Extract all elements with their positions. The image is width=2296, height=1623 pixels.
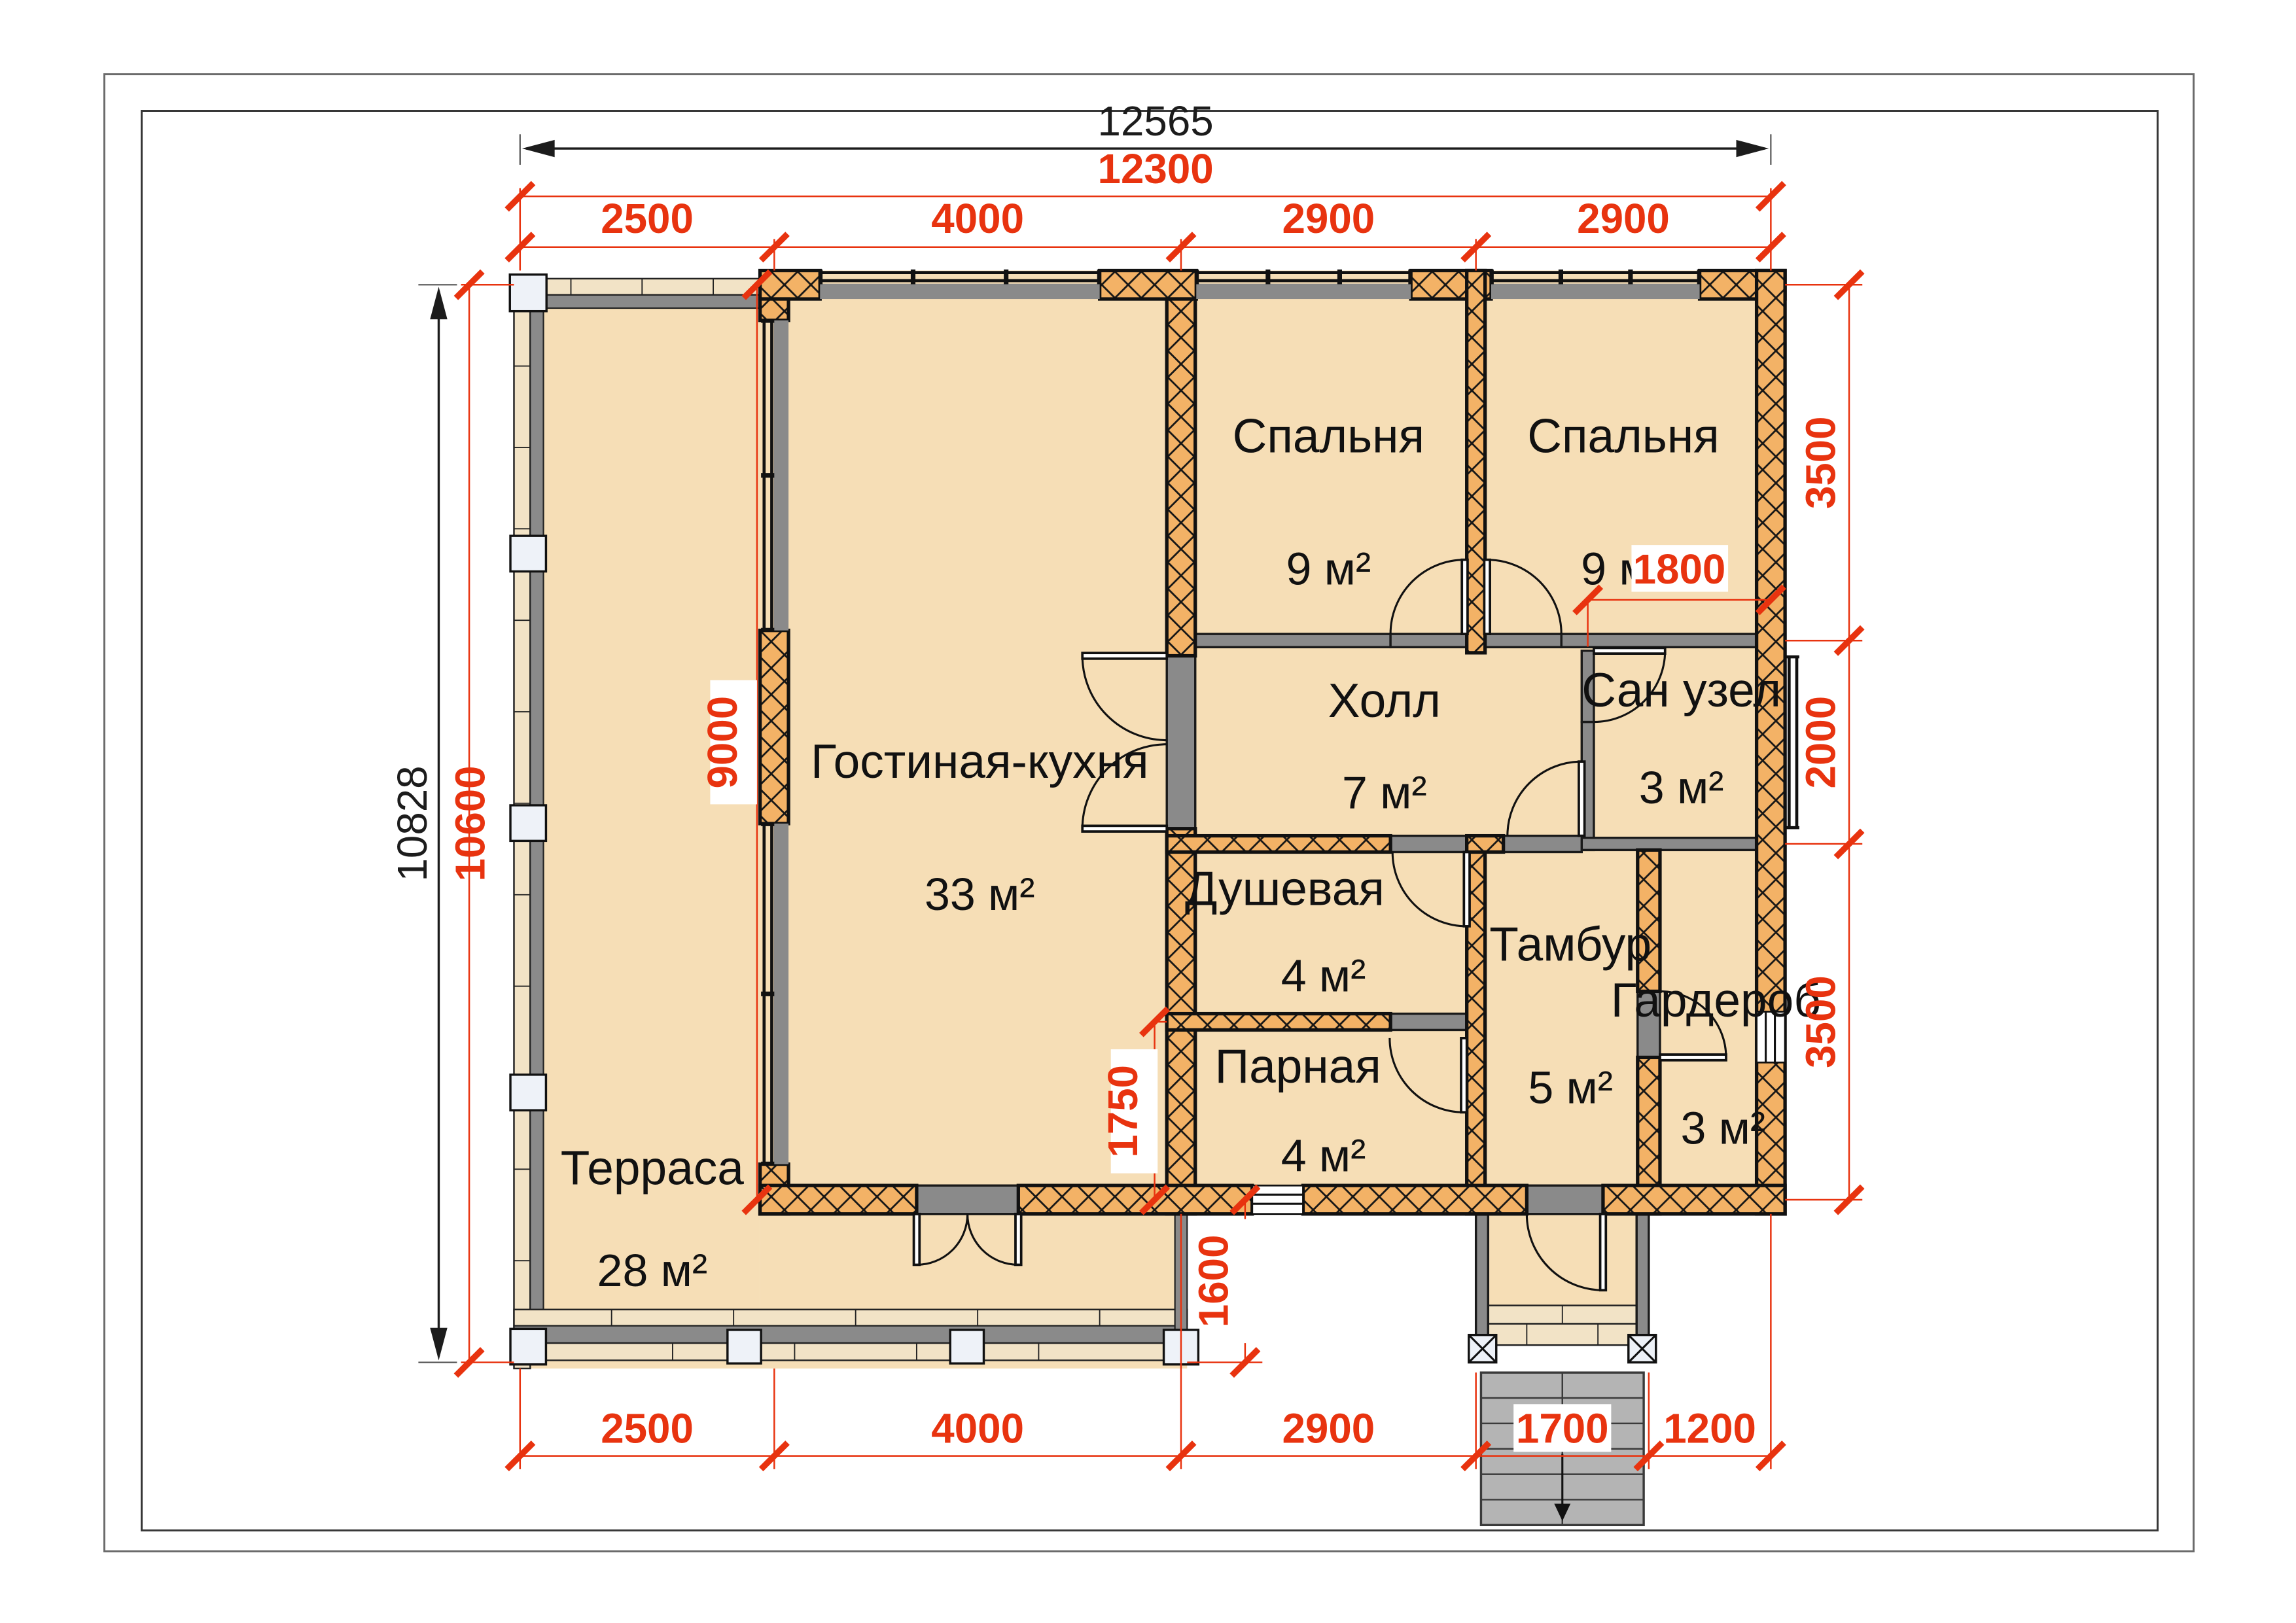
wall-segment (1467, 836, 1504, 852)
dim-right-2000: 2000 (1797, 696, 1844, 789)
door-threshold (1390, 634, 1467, 647)
dim-inner-1600: 1600 (1190, 1234, 1237, 1327)
room-label-tambur-area: 5 м² (1528, 1062, 1613, 1113)
wall-segment (760, 1185, 917, 1214)
door-threshold (917, 1185, 1018, 1214)
window-living-left-lower (761, 824, 788, 1164)
wall-segment (760, 631, 789, 824)
dim-bottom-1700: 1700 (1516, 1405, 1609, 1452)
partition (1581, 838, 1756, 850)
door-threshold (1167, 656, 1195, 829)
room-label-bedroom2-name: Спальня (1527, 410, 1719, 463)
floor-plan-drawing: Спальня 9 м² Спальня 9 м² Гостиная-кухня… (357, 92, 1893, 1576)
terrace-floor (514, 279, 760, 1369)
dim-left-10828: 10828 (389, 765, 436, 881)
window-bedroom2-top (1491, 270, 1700, 299)
room-label-living-area: 33 м² (925, 869, 1035, 920)
dim-left-overall: 10828 (389, 287, 448, 1360)
terrace-top-rail (530, 295, 760, 308)
room-label-tambur-name: Тамбур (1489, 918, 1651, 971)
room-label-terrace-area: 28 м² (597, 1245, 708, 1296)
dim-bottom-1200: 1200 (1663, 1405, 1756, 1452)
dim-bottom-2900: 2900 (1282, 1405, 1375, 1452)
wall-segment (1167, 1014, 1390, 1030)
terrace-post (510, 536, 546, 571)
wall-segment (1167, 299, 1195, 655)
room-label-garderob-name: Гардероб (1611, 974, 1821, 1027)
wall-segment (1757, 271, 1786, 1214)
dim-top-2900b: 2900 (1577, 195, 1670, 242)
dim-bottom-2500: 2500 (601, 1405, 694, 1452)
porch-wall-right (1636, 1214, 1649, 1345)
dim-top-2500: 2500 (601, 195, 694, 242)
room-label-shower-name: Душевая (1185, 862, 1385, 915)
terrace-post (510, 275, 546, 311)
room-label-bedroom1-name: Спальня (1233, 410, 1424, 463)
porch-post-left (1469, 1335, 1496, 1363)
dim-bottom-4000: 4000 (931, 1405, 1024, 1452)
dim-left-axis: 10600 (446, 271, 493, 1376)
window-living-left-upper (761, 321, 788, 631)
dim-right-segments: 3500 2000 3500 (1797, 271, 1862, 1213)
porch-post-right (1629, 1335, 1656, 1363)
room-label-sanuzel-name: Сан узел (1581, 664, 1781, 717)
door-threshold (1390, 1014, 1467, 1030)
porch-wall-left (1476, 1214, 1489, 1345)
terrace-post (728, 1330, 761, 1363)
dim-right-3500b: 3500 (1797, 975, 1844, 1068)
dim-right-3500a: 3500 (1797, 416, 1844, 509)
dim-left-10600: 10600 (446, 765, 493, 881)
wall-segment (1467, 271, 1485, 653)
terrace-post (950, 1330, 983, 1363)
dim-top-segments: 2500 4000 2900 2900 (507, 195, 1784, 260)
partition (1195, 634, 1390, 647)
deck-rail (514, 1326, 1187, 1343)
partition (1561, 634, 1756, 647)
wall-segment (1100, 271, 1197, 300)
room-label-bedroom1-area: 9 м² (1286, 544, 1371, 595)
dim-top-4000: 4000 (931, 195, 1024, 242)
wall-segment (760, 299, 789, 321)
wall-segment (1603, 1185, 1785, 1214)
porch-deck-row (1488, 1324, 1636, 1346)
room-label-parnaya-name: Парная (1215, 1040, 1381, 1093)
wall-segment (1018, 1185, 1252, 1214)
door-threshold (1390, 836, 1467, 852)
deck-plank-row1 (514, 1310, 1187, 1326)
dim-top-overall: 12565 (522, 97, 1769, 157)
room-label-garderob-area: 3 м² (1680, 1103, 1765, 1154)
room-label-shower-area: 4 м² (1281, 950, 1366, 1001)
room-label-hall-name: Холл (1328, 674, 1441, 727)
room-label-sanuzel-area: 3 м² (1639, 762, 1724, 813)
room-label-hall-area: 7 м² (1342, 767, 1427, 818)
dim-top-12565: 12565 (1098, 97, 1214, 145)
dim-top-2900a: 2900 (1282, 195, 1375, 242)
dim-top-12300: 12300 (1098, 145, 1214, 192)
wall-segment (1167, 836, 1390, 852)
terrace-post (510, 1075, 546, 1110)
dim-inner-9000: 9000 (699, 696, 746, 789)
terrace-top-plank (514, 279, 760, 295)
wall-segment (1303, 1185, 1527, 1214)
door-threshold (1504, 836, 1582, 852)
terrace-post (510, 805, 546, 841)
window-bedroom1-top (1196, 270, 1411, 299)
window-parnaya-bottom (1252, 1185, 1303, 1214)
terrace-post (510, 1329, 546, 1364)
deck-plank-row2 (514, 1343, 1187, 1360)
door-threshold (1485, 634, 1562, 647)
dim-inner-1800: 1800 (1633, 546, 1726, 593)
dim-inner-1750: 1750 (1099, 1065, 1146, 1158)
window-living-top (820, 270, 1099, 299)
room-label-living-name: Гостиная-кухня (811, 735, 1149, 788)
room-label-parnaya-area: 4 м² (1281, 1130, 1366, 1181)
room-label-terrace-name: Терраса (561, 1142, 744, 1195)
door-threshold (1527, 1185, 1603, 1214)
